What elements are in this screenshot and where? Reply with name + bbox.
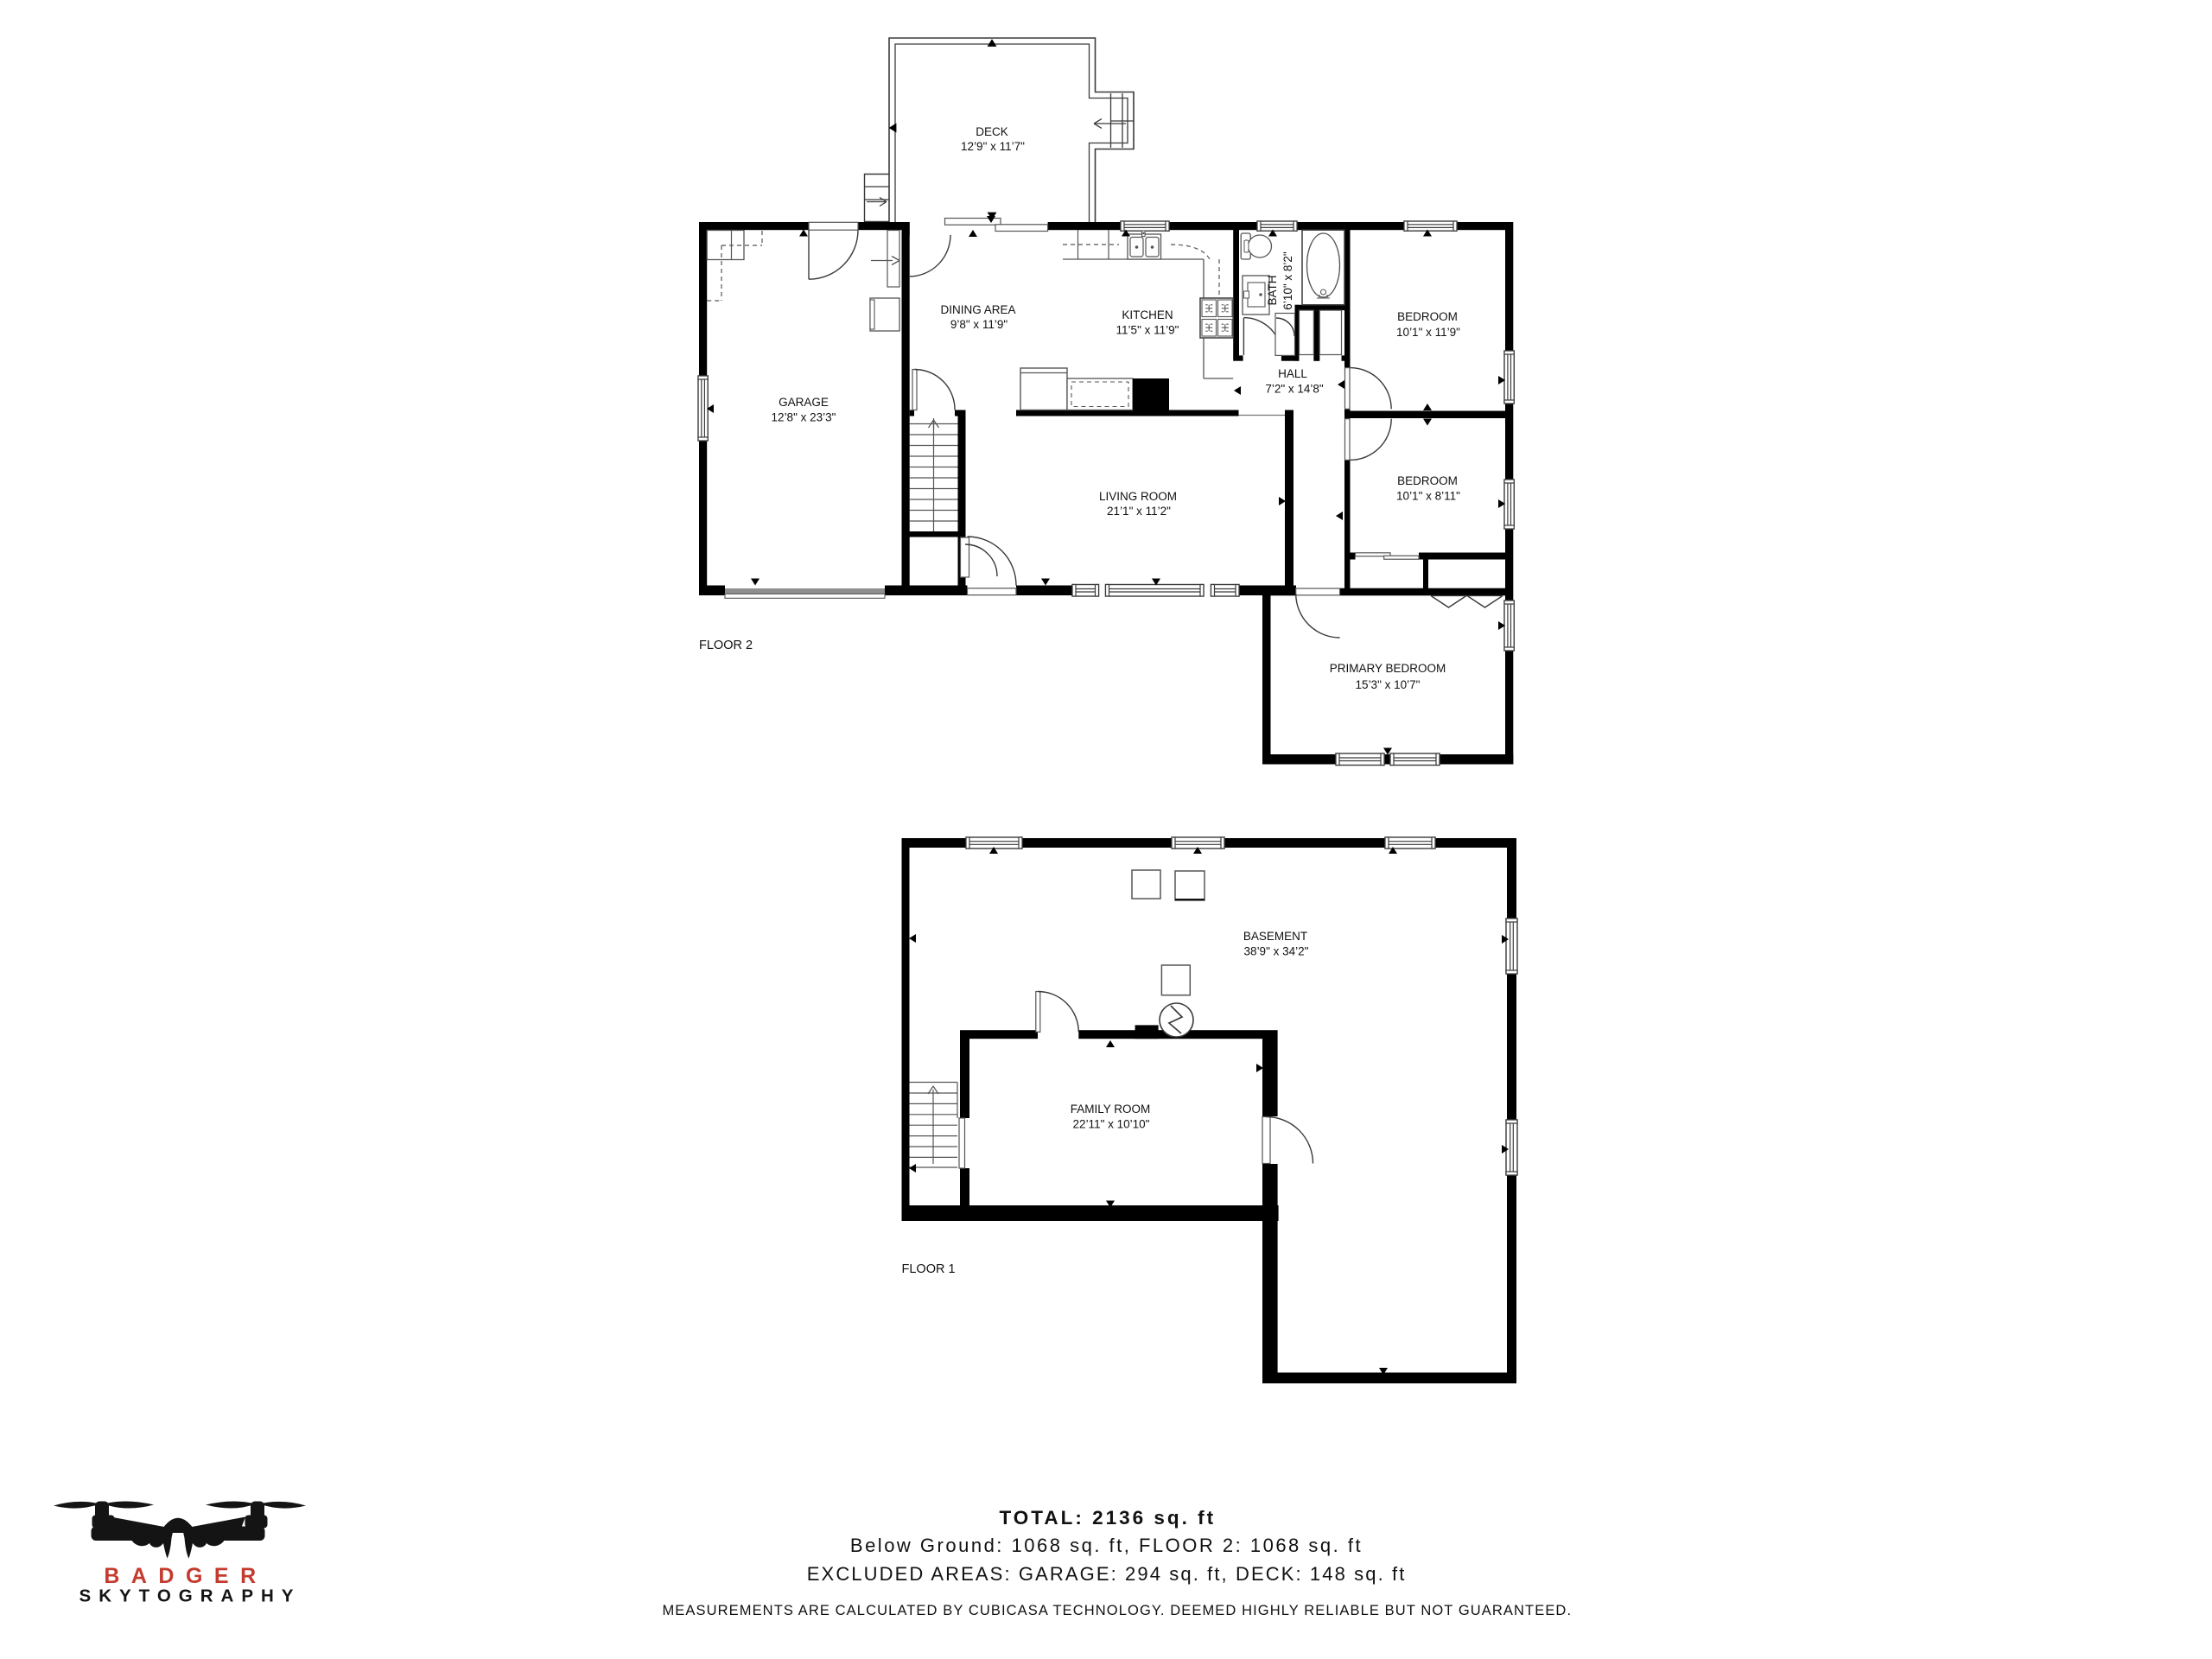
svg-text:Below Ground: 1068 sq. ft, FLO: Below Ground: 1068 sq. ft, FLOOR 2: 1068…	[850, 1535, 1363, 1556]
svg-text:9’8" x 11’9": 9’8" x 11’9"	[950, 318, 1008, 331]
svg-text:10’1" x 11’9": 10’1" x 11’9"	[1396, 326, 1460, 339]
svg-text:SKYTOGRAPHY: SKYTOGRAPHY	[79, 1586, 302, 1606]
svg-text:KITCHEN: KITCHEN	[1122, 308, 1173, 321]
svg-text:38’9" x 34’2": 38’9" x 34’2"	[1244, 945, 1309, 958]
svg-text:7’2" x 14’8": 7’2" x 14’8"	[1265, 383, 1324, 396]
svg-text:PRIMARY BEDROOM: PRIMARY BEDROOM	[1330, 662, 1446, 675]
svg-text:15’3" x 10’7": 15’3" x 10’7"	[1356, 678, 1421, 691]
svg-text:DINING AREA: DINING AREA	[940, 303, 1015, 316]
svg-text:FLOOR 2: FLOOR 2	[699, 639, 753, 652]
svg-text:6’10" x 8’2": 6’10" x 8’2"	[1281, 251, 1294, 310]
svg-text:BADGER: BADGER	[104, 1564, 267, 1588]
svg-text:HALL: HALL	[1278, 367, 1307, 380]
svg-text:12’8" x 23’3": 12’8" x 23’3"	[772, 411, 836, 424]
svg-text:11’5" x 11’9": 11’5" x 11’9"	[1116, 324, 1179, 337]
svg-text:LIVING ROOM: LIVING ROOM	[1099, 490, 1177, 503]
svg-text:BEDROOM: BEDROOM	[1397, 310, 1458, 323]
svg-text:21’1" x 11’2": 21’1" x 11’2"	[1107, 505, 1171, 518]
svg-text:12’9" x 11’7": 12’9" x 11’7"	[961, 140, 1025, 153]
svg-text:22’11" x 10’10": 22’11" x 10’10"	[1073, 1118, 1150, 1131]
svg-text:BEDROOM: BEDROOM	[1397, 474, 1458, 487]
svg-text:BASEMENT: BASEMENT	[1243, 930, 1307, 943]
svg-text:MEASUREMENTS ARE CALCULATED BY: MEASUREMENTS ARE CALCULATED BY CUBICASA …	[662, 1603, 1572, 1618]
svg-text:DECK: DECK	[976, 125, 1008, 138]
svg-text:EXCLUDED AREAS: GARAGE: 294 sq: EXCLUDED AREAS: GARAGE: 294 sq. ft, DECK…	[807, 1563, 1407, 1585]
svg-text:GARAGE: GARAGE	[779, 396, 829, 409]
svg-text:TOTAL: 2136 sq. ft: TOTAL: 2136 sq. ft	[999, 1507, 1216, 1529]
svg-text:BATH: BATH	[1266, 275, 1279, 305]
svg-text:10’1" x 8’11": 10’1" x 8’11"	[1396, 490, 1460, 503]
svg-text:FAMILY ROOM: FAMILY ROOM	[1071, 1103, 1151, 1116]
svg-text:FLOOR 1: FLOOR 1	[902, 1262, 956, 1276]
